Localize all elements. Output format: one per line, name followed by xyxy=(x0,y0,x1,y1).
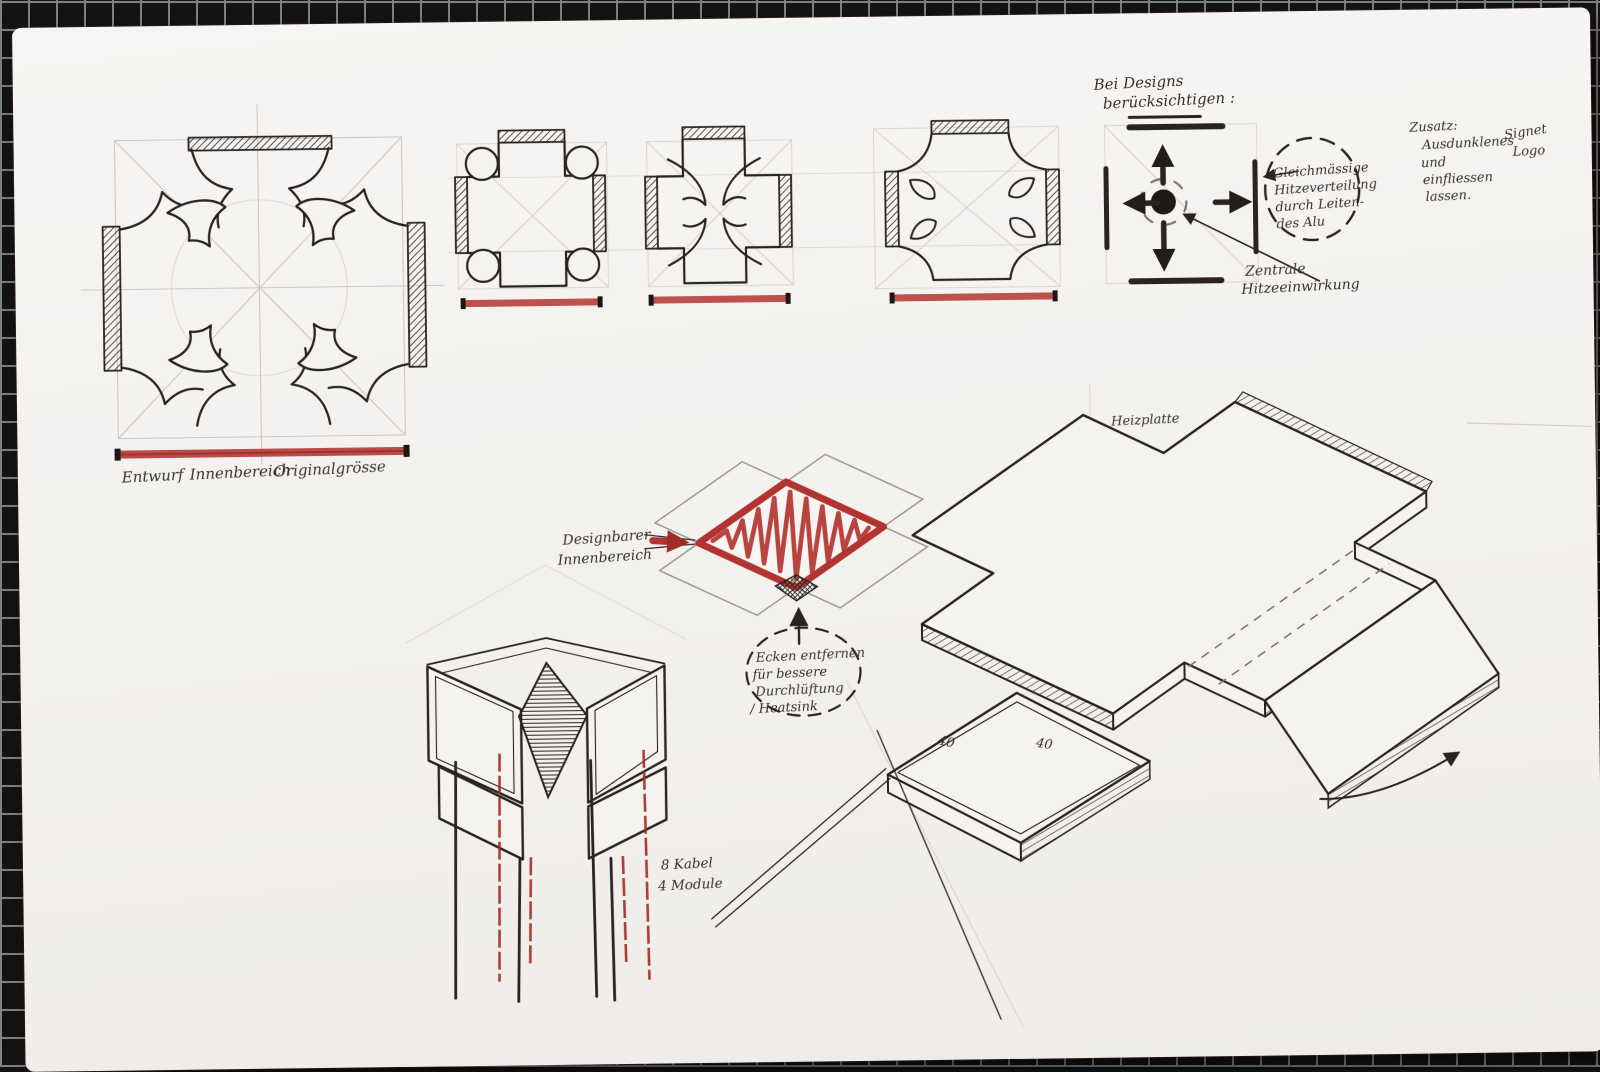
label-module: 4 Module xyxy=(657,876,723,895)
note-zusatz: Zusatz: Ausdunklenes Signet Logo und ein… xyxy=(1408,114,1552,206)
cross-variant-hook-notches xyxy=(644,126,792,306)
cross-variant-round-notches xyxy=(454,129,606,309)
sketch-svg: Entwurf Innenbereich Originalgrösse xyxy=(12,7,1600,1072)
svg-text:Logo: Logo xyxy=(1511,143,1545,160)
svg-text:einfliessen: einfliessen xyxy=(1422,170,1493,188)
dim-40-right: 40 xyxy=(1034,736,1054,754)
heat-bubble-line: durch Leiten- xyxy=(1275,195,1365,216)
label-kabel: 8 Kabel xyxy=(660,855,713,873)
ecken-bubble-line: für bessere xyxy=(751,665,827,684)
svg-text:Ausdunklenes: Ausdunklenes xyxy=(1421,134,1515,153)
heizplatte-isometric-sketch: Heizplatte 40 40 xyxy=(705,389,1503,1023)
module-top-plate xyxy=(518,663,588,798)
label-entwurf: Entwurf xyxy=(120,466,186,487)
label-heizplatte: Heizplatte xyxy=(1110,411,1180,429)
scale-bar-v3 xyxy=(649,293,791,306)
wire-entry xyxy=(645,534,695,549)
heater-diamond-sketch: Designbarer Innenbereich Ecken entfernen… xyxy=(555,453,930,720)
ornamental-cross-drawing: Entwurf Innenbereich Originalgrösse xyxy=(101,135,428,487)
note-designbar-line1: Designbarer xyxy=(561,527,652,549)
svg-text:und: und xyxy=(1421,155,1447,171)
heat-arrows xyxy=(1129,150,1246,266)
ecken-bubble-line: Ecken entfernen xyxy=(754,646,865,666)
scale-bar-v2 xyxy=(461,296,603,309)
scale-bar-v4 xyxy=(890,290,1058,303)
svg-text:lassen.: lassen. xyxy=(1425,188,1471,205)
ecken-bubble-line: Durchlüftung xyxy=(754,681,844,700)
note-zentrale-line1: Zentrale xyxy=(1244,261,1306,280)
note-designbar-line2: Innenbereich xyxy=(556,547,652,569)
cross-variant-leaf-notches xyxy=(884,119,1060,303)
square-plate-40x40: 40 40 xyxy=(709,691,1153,1023)
ecken-bubble-line: / Heatsink xyxy=(748,699,818,717)
svg-text:Signet: Signet xyxy=(1503,122,1548,143)
heat-bubble-line: des Alu xyxy=(1276,214,1326,232)
heat-distribution-diagram: Bei Designs berücksichtigen : Gleichmäss… xyxy=(1092,67,1553,300)
module-underside-sketch: 8 Kabel 4 Module xyxy=(427,636,724,1003)
svg-text:Zusatz:: Zusatz: xyxy=(1408,118,1458,135)
sketch-paper: Entwurf Innenbereich Originalgrösse xyxy=(12,7,1600,1072)
